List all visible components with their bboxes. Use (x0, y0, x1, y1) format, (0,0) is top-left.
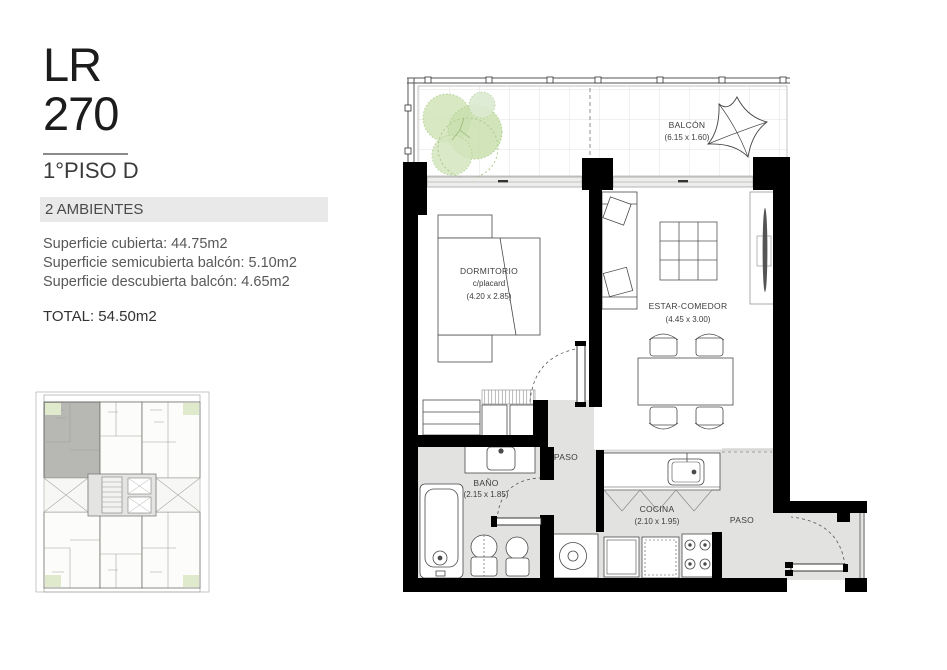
courtyard-left (44, 478, 88, 512)
vanity-sink (465, 443, 535, 473)
unit-type-badge: 2 AMBIENTES (40, 197, 328, 222)
nightstand (438, 335, 492, 362)
hall-1-label: PASO (554, 452, 578, 462)
placard-rail (482, 390, 535, 404)
bathtub (420, 484, 463, 578)
bedroom-door (530, 341, 586, 407)
area-list: Superficie cubierta: 44.75m2 Superficie … (43, 235, 297, 292)
bedroom-sublabel: c/placard (473, 279, 505, 288)
bath-dims: (2.15 x 1.85) (464, 490, 509, 499)
sofa (602, 192, 637, 309)
unit-code-line1: LR (43, 40, 118, 89)
area-semicovered: Superficie semicubierta balcón: 5.10m2 (43, 254, 297, 273)
courtyard-right (156, 478, 200, 512)
balcony-dims: (6.15 x 1.60) (665, 133, 710, 142)
living-label: ESTAR-COMEDOR (649, 301, 728, 311)
unit-code-line2: 270 (43, 89, 118, 138)
rug (660, 222, 717, 280)
placard-unit (482, 405, 507, 437)
placard-unit (510, 405, 535, 437)
balcony-label: BALCÓN (669, 120, 706, 130)
nightstand (438, 215, 492, 238)
area-covered: Superficie cubierta: 44.75m2 (43, 235, 297, 254)
bedroom-area (423, 215, 540, 437)
floor-plan: BALCÓN (6.15 x 1.60) DORMITORIO c/placar… (395, 55, 895, 600)
kitchen-dims: (2.10 x 1.95) (635, 517, 680, 526)
fridge (604, 537, 639, 577)
floorplan-sheet: LR 270 1°PISO D 2 AMBIENTES Superficie c… (0, 0, 947, 670)
divider-line (43, 153, 128, 155)
kitchen-label: COCINA (640, 504, 675, 514)
hall-2-label: PASO (730, 515, 754, 525)
bedroom-dims: (4.20 x 2.85) (467, 292, 512, 301)
key-plan (30, 388, 215, 595)
placard-unit (423, 400, 480, 435)
living-dims: (4.45 x 3.00) (666, 315, 711, 324)
kitchen-module (642, 537, 679, 578)
floor-label: 1°PISO D (43, 158, 139, 184)
toilet (471, 535, 497, 576)
bath-label: BAÑO (473, 478, 498, 488)
kitchen-counter (602, 453, 720, 490)
unit-code: LR 270 (43, 40, 118, 138)
area-total: TOTAL: 54.50m2 (43, 308, 157, 325)
stove (682, 534, 713, 577)
washing-machine (548, 534, 598, 578)
bedroom-label: DORMITORIO (460, 266, 518, 276)
area-uncovered: Superficie descubierta balcón: 4.65m2 (43, 273, 297, 292)
building-core (88, 474, 156, 516)
dining-table (638, 334, 733, 429)
